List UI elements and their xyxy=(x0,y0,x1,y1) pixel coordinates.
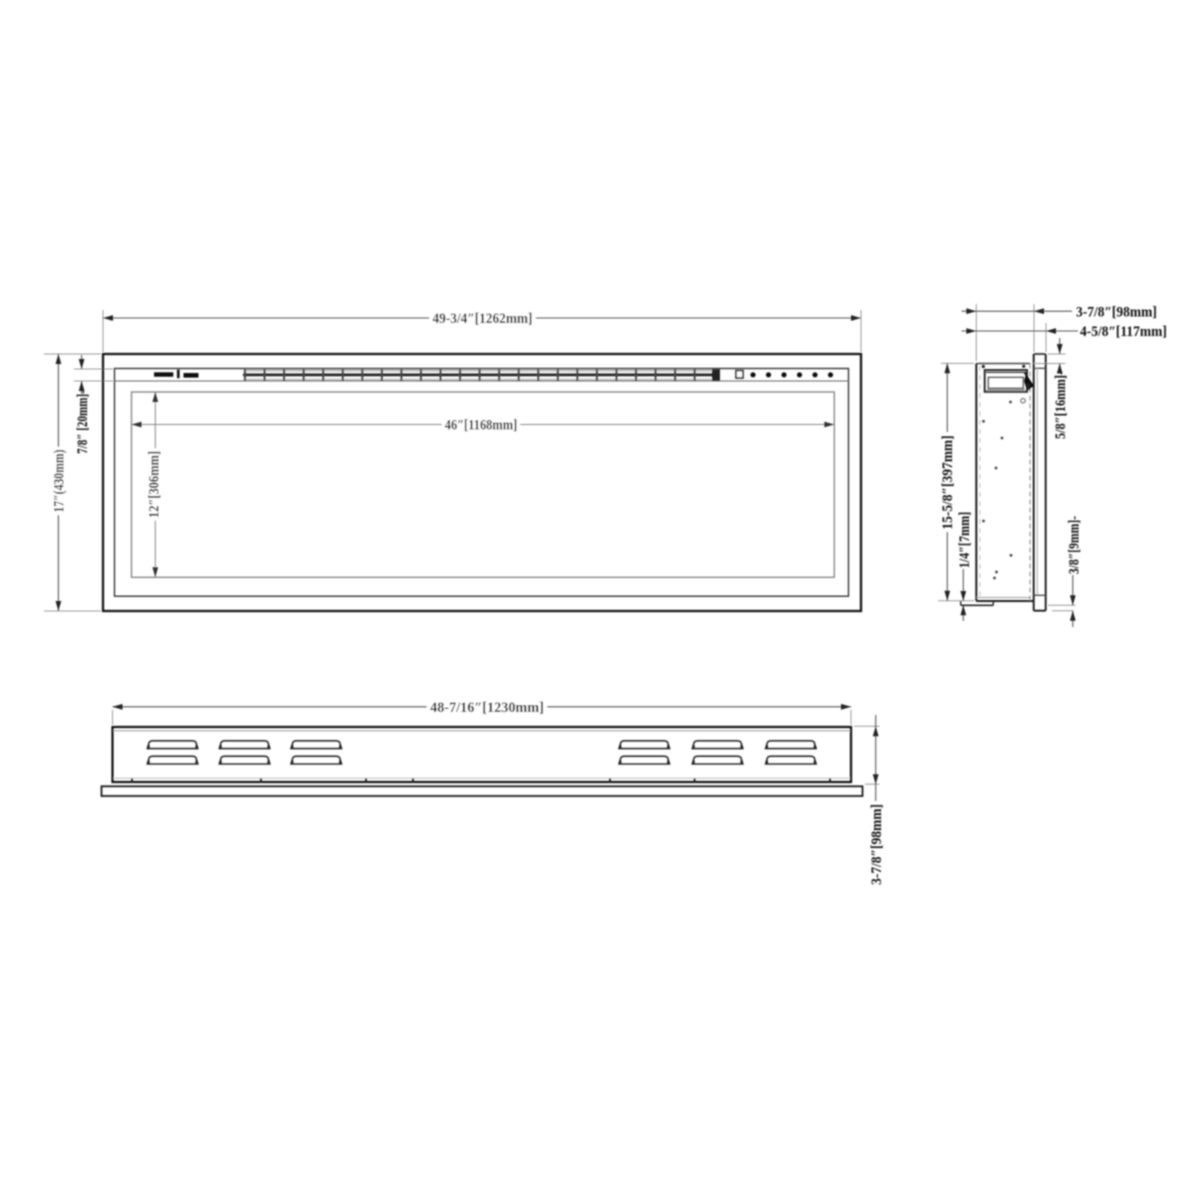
svg-text:49-3/4″[1262mm]: 49-3/4″[1262mm] xyxy=(433,311,533,328)
svg-text:4-5/8″[117mm]: 4-5/8″[117mm] xyxy=(1080,324,1167,341)
svg-text:3-7/8″[98mm]: 3-7/8″[98mm] xyxy=(1076,304,1157,321)
svg-text:48-7/16″[1230mm]: 48-7/16″[1230mm] xyxy=(430,700,544,716)
svg-text:12″[306mm]: 12″[306mm] xyxy=(145,451,161,518)
svg-text:46″[1168mm]: 46″[1168mm] xyxy=(445,417,517,433)
svg-text:3-7/8″[98mm]: 3-7/8″[98mm] xyxy=(868,804,885,885)
svg-text:5/8″[16mm]‑: 5/8″[16mm]‑ xyxy=(1052,370,1068,439)
svg-text:3/8″[9mm]‑: 3/8″[9mm]‑ xyxy=(1065,516,1082,574)
svg-text:7/8″ [20mm]‑: 7/8″ [20mm]‑ xyxy=(73,390,90,454)
svg-text:17″(430mm): 17″(430mm) xyxy=(50,450,67,513)
svg-text:15-5/8″[397mm]: 15-5/8″[397mm] xyxy=(940,435,957,529)
svg-text:1/4″[7mm]: 1/4″[7mm] xyxy=(956,512,972,569)
